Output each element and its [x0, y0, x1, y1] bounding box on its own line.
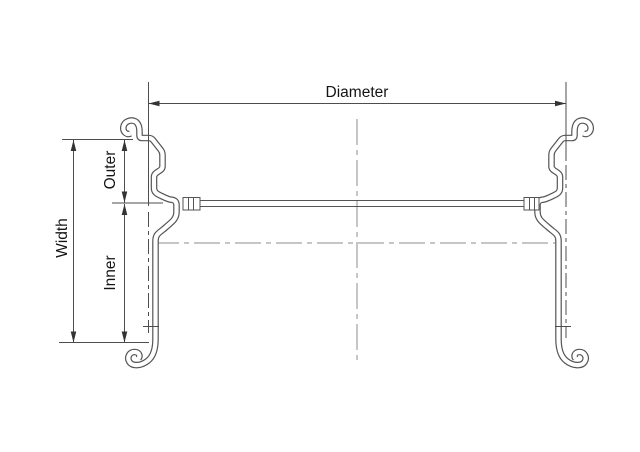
rim-cross-section-drawing: Diameter Width Outer Inner — [0, 0, 640, 452]
diameter-arrow-right-icon — [555, 101, 566, 107]
center-lines — [153, 119, 562, 365]
outer-arrow-bottom-icon — [122, 192, 128, 203]
disc-weld-right — [524, 198, 539, 211]
disc-weld-left — [183, 198, 200, 211]
drawing-canvas: Diameter Width Outer Inner — [0, 0, 640, 452]
inner-arrow-bottom-icon — [122, 332, 128, 343]
disc-bar — [183, 198, 539, 211]
diameter-label: Diameter — [326, 84, 389, 101]
diameter-arrow-left-icon — [149, 101, 160, 107]
width-arrow-bottom-icon — [71, 332, 77, 343]
width-label: Width — [54, 218, 71, 258]
outer-arrow-top-icon — [122, 140, 128, 151]
width-arrow-top-icon — [71, 140, 77, 151]
inner-label: Inner — [102, 255, 119, 290]
outer-label: Outer — [102, 151, 119, 190]
inner-arrow-top-icon — [122, 204, 128, 215]
